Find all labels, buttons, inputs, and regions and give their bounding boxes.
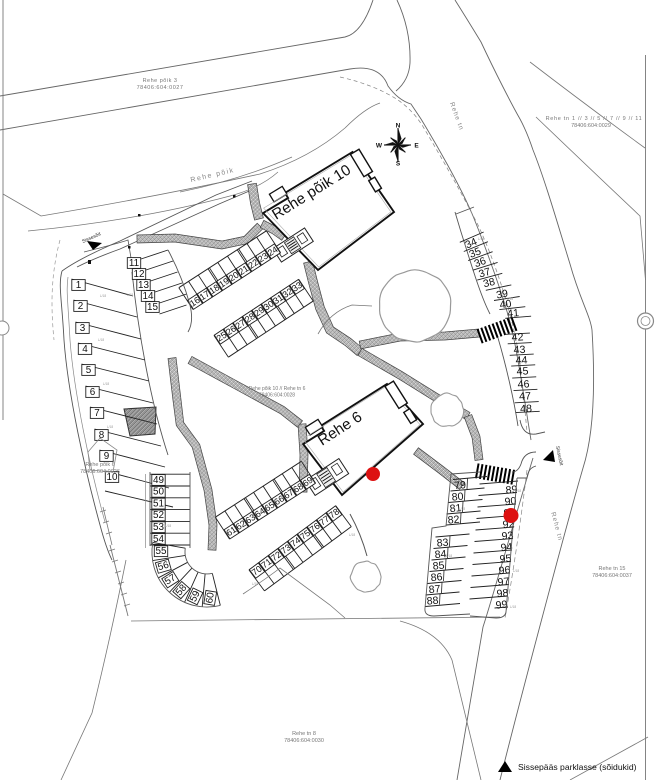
svg-text:48: 48 [520,403,533,416]
svg-text:51: 51 [153,498,164,509]
svg-text:4: 4 [82,344,88,355]
svg-text:52: 52 [153,510,164,521]
svg-text:L/18: L/18 [513,569,519,573]
svg-text:60: 60 [204,591,217,604]
svg-text:14: 14 [143,291,154,302]
svg-text:86: 86 [430,571,443,584]
svg-text:L/18: L/18 [103,382,109,386]
svg-text:W: W [376,143,383,150]
svg-text:15: 15 [147,302,158,313]
svg-text:L/18: L/18 [100,294,106,298]
svg-text:L/18: L/18 [507,297,513,301]
svg-text:53: 53 [153,522,164,533]
svg-text:50: 50 [153,487,164,498]
svg-text:13: 13 [138,280,149,291]
svg-text:6: 6 [90,387,96,398]
svg-text:7: 7 [94,408,100,419]
svg-text:78406:604:0028: 78406:604:0028 [259,393,295,399]
svg-text:L/18: L/18 [446,554,452,558]
svg-text:L/18: L/18 [127,293,133,297]
svg-text:9: 9 [104,451,110,462]
svg-text:N: N [396,123,401,130]
svg-text:5: 5 [86,365,92,376]
svg-text:L/18: L/18 [521,360,527,364]
svg-text:55: 55 [156,546,167,557]
svg-text:Sissepääs parklasse (sõidukid): Sissepääs parklasse (sõidukid) [518,762,637,772]
svg-text:L/18: L/18 [107,425,113,429]
svg-text:Rehe tn 1 // 3 // 5 // 7 // 9: Rehe tn 1 // 3 // 5 // 7 // 9 // 11 [546,116,643,122]
svg-text:L/18: L/18 [515,489,521,493]
svg-text:L/18: L/18 [252,582,258,586]
svg-text:47: 47 [519,390,532,403]
svg-text:S: S [396,161,401,168]
svg-text:46: 46 [517,378,530,391]
svg-text:L/18: L/18 [349,533,355,537]
svg-text:3: 3 [80,323,86,334]
svg-text:78406:604:0037: 78406:604:0037 [592,573,632,579]
svg-text:78406:604:0029: 78406:604:0029 [571,123,611,129]
svg-text:1: 1 [76,280,82,291]
svg-text:Rehe tn 8: Rehe tn 8 [292,731,316,737]
svg-text:45: 45 [516,365,529,378]
svg-text:78406:604:0027: 78406:604:0027 [137,85,184,91]
svg-text:11: 11 [129,258,140,269]
svg-text:78406:604:0026: 78406:604:0026 [80,469,120,475]
svg-text:Rehe põik 10 // Rehe tn 6: Rehe põik 10 // Rehe tn 6 [249,386,306,392]
svg-text:L/18: L/18 [478,237,484,241]
svg-text:Rehe tn 15: Rehe tn 15 [599,566,626,572]
svg-text:L/18: L/18 [459,507,465,511]
svg-text:L/18: L/18 [165,524,171,528]
svg-text:E: E [414,143,419,150]
svg-text:41: 41 [507,307,520,320]
svg-text:Rehe põik 3: Rehe põik 3 [143,78,178,84]
svg-text:L/18: L/18 [510,605,516,609]
svg-text:12: 12 [134,269,145,280]
svg-text:42: 42 [511,331,524,344]
svg-text:49: 49 [153,475,164,486]
svg-text:78406:604:0030: 78406:604:0030 [284,738,324,744]
svg-text:L/18: L/18 [98,338,104,342]
svg-text:2: 2 [78,301,84,312]
